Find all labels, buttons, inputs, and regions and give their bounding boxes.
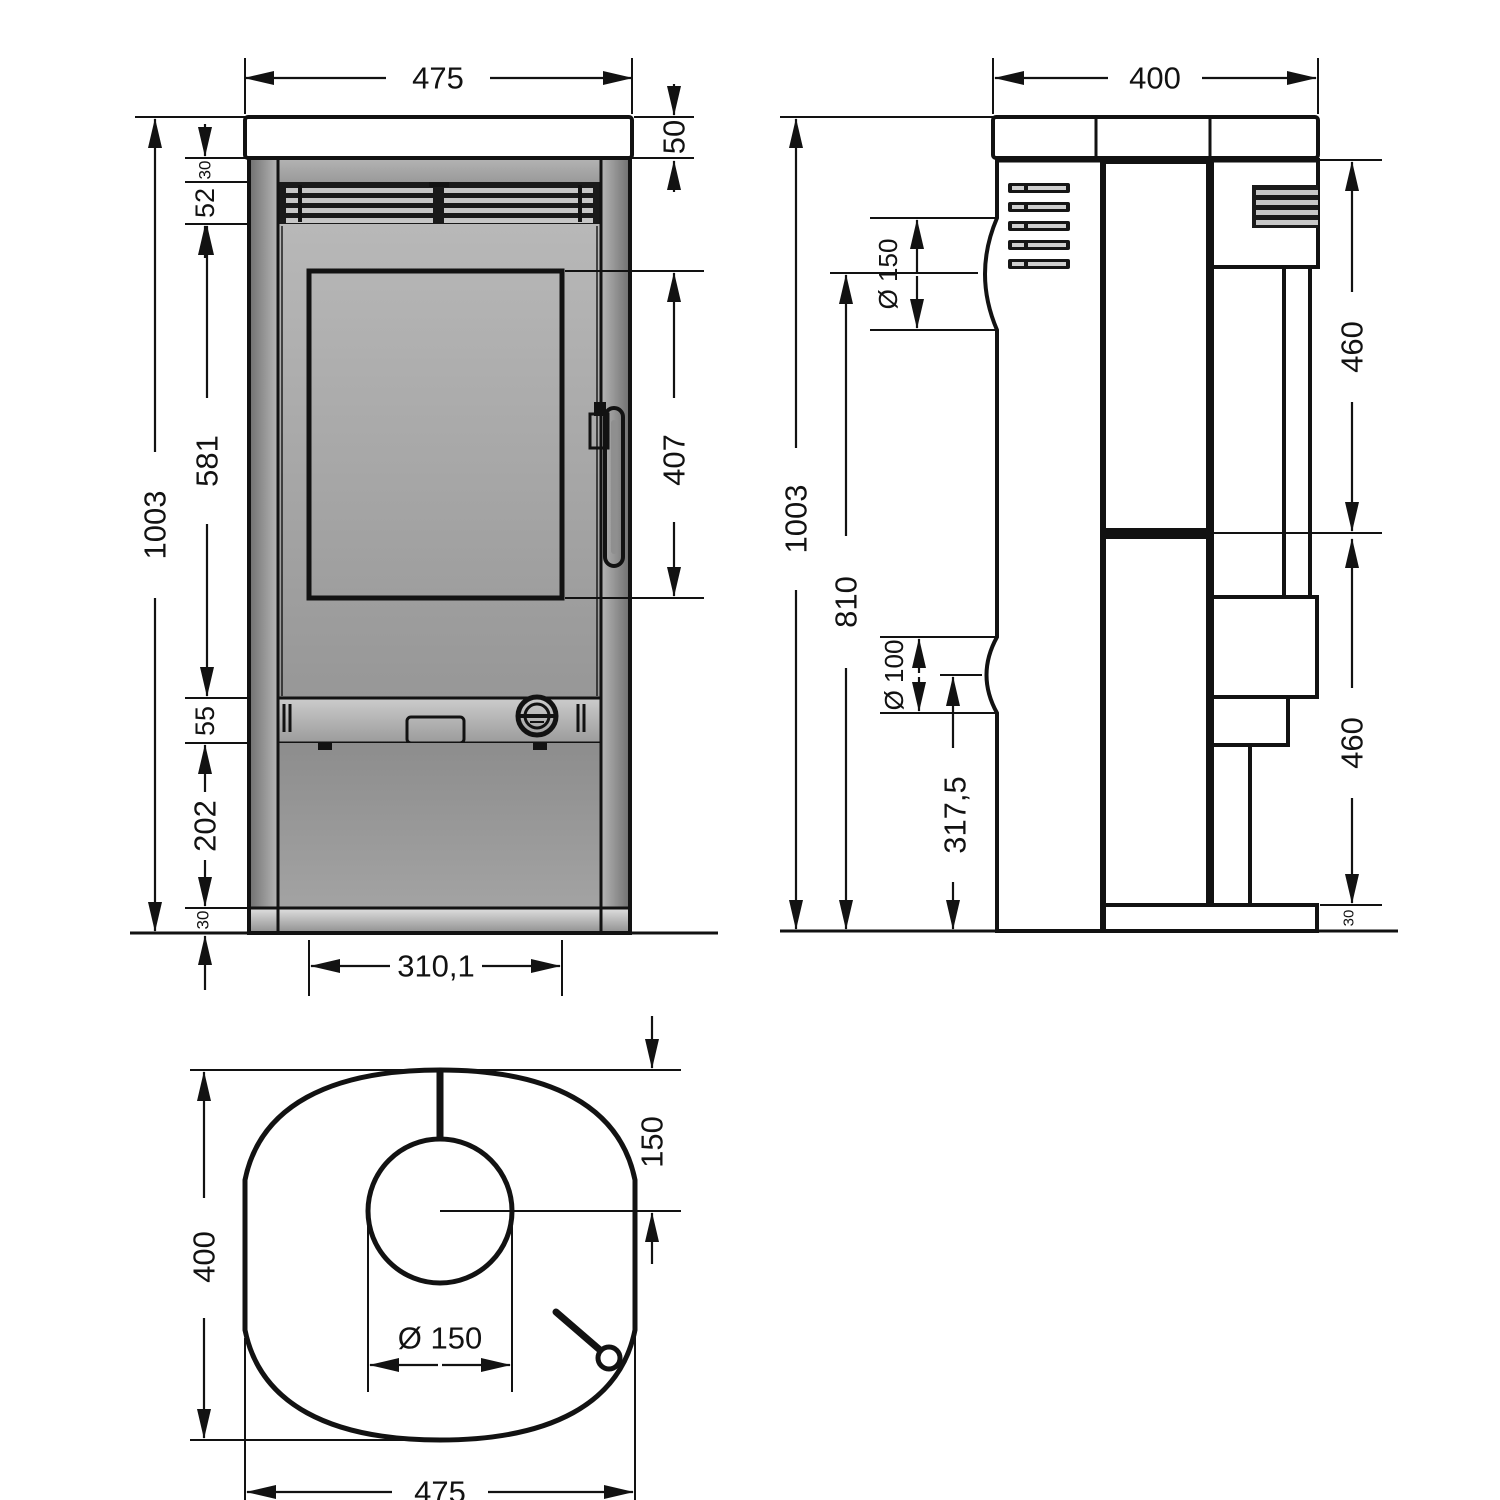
dim-top-flue-diameter: Ø 150 — [398, 1321, 482, 1356]
dim-side-flue-height: 810 — [829, 576, 864, 628]
side-top-plate — [993, 117, 1318, 160]
dim-front-top-plate: 50 — [657, 120, 692, 154]
front-view: 475 50 30 52 1003 581 — [130, 58, 718, 996]
front-top-band — [278, 158, 601, 182]
dim-front-glass-height: 407 — [657, 434, 692, 486]
side-rear-vent-slots — [1008, 183, 1070, 269]
dim-top-depth: 400 — [187, 1231, 222, 1283]
dim-front-top-gap: 30 — [196, 161, 215, 180]
dim-front-overall-width: 475 — [412, 61, 464, 96]
side-door-glass-edge — [1284, 267, 1310, 597]
side-view: 400 1003 810 Ø 150 Ø 100 — [779, 58, 1399, 931]
side-ceramic-panels — [1104, 162, 1208, 905]
front-top-plate — [245, 117, 632, 158]
dim-front-control-band: 55 — [190, 706, 220, 736]
dim-front-lower-panel: 202 — [188, 800, 223, 852]
dim-front-overall-height: 1003 — [138, 491, 173, 560]
dim-side-upper-panel: 460 — [1335, 321, 1370, 373]
front-door-face — [278, 224, 601, 698]
dim-side-overall-height: 1003 — [779, 485, 814, 554]
dim-front-grille: 52 — [190, 188, 220, 218]
stove-dimension-drawing: 475 50 30 52 1003 581 — [0, 0, 1500, 1500]
front-left-pillar — [249, 158, 278, 908]
door-handle-top — [556, 1312, 620, 1369]
top-view: 400 150 Ø 150 475 — [187, 1016, 682, 1500]
front-control-band — [278, 697, 601, 743]
front-lower-panel — [278, 743, 601, 908]
dim-side-base: 30 — [1341, 910, 1358, 927]
dim-side-depth: 400 — [1129, 61, 1181, 96]
front-base-strip — [249, 908, 630, 933]
drawing-page: 475 50 30 52 1003 581 — [0, 0, 1500, 1500]
front-air-grille — [278, 182, 601, 224]
dim-front-upper-body: 581 — [190, 435, 225, 487]
dim-front-inner-width: 310,1 — [397, 949, 475, 984]
rotary-knob — [516, 697, 558, 735]
dim-side-inlet-diameter: Ø 100 — [879, 640, 909, 711]
side-rear-column — [985, 160, 1102, 931]
dim-top-width: 475 — [414, 1475, 466, 1500]
side-base-strip — [1104, 905, 1317, 931]
dim-side-lower-panel: 460 — [1335, 717, 1370, 769]
top-dimensions: 400 150 Ø 150 475 — [187, 1016, 682, 1500]
dim-side-inlet-height: 317,5 — [938, 776, 973, 854]
dim-top-flue-offset: 150 — [635, 1116, 670, 1168]
dim-front-base: 30 — [194, 911, 213, 930]
dim-side-flue-diameter: Ø 150 — [873, 239, 903, 310]
